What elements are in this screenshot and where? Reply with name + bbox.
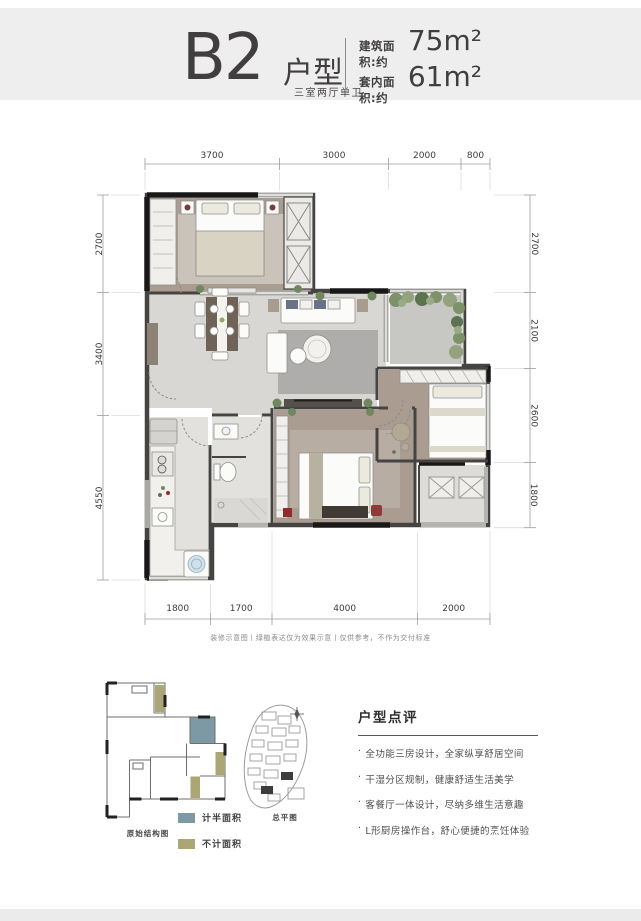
building-area-row: 建筑面积:约 75m² — [359, 24, 482, 60]
review-text: 干湿分区规制，健康舒适生活美学 — [365, 772, 514, 786]
excluded-area-swatch — [178, 839, 195, 849]
inner-area-value: 61m² — [408, 60, 482, 93]
dim-label: 3000 — [323, 151, 346, 161]
dimension-bottom — [145, 613, 490, 625]
structure-diagram — [98, 676, 238, 826]
site-boundary — [244, 705, 307, 808]
review-text: 全功能三房设计，全家纵享舒居空间 — [365, 746, 523, 760]
dim-label: 3700 — [201, 151, 224, 161]
dim-label: 2700 — [95, 232, 105, 255]
review-text: 客餐厅一体设计，尽纳多维生活意趣 — [365, 797, 523, 811]
bullet-marker: · — [358, 772, 361, 786]
dim-label: 2000 — [442, 604, 465, 614]
review-item: · L形厨房操作台，舒心便捷的烹饪体验 — [358, 823, 553, 837]
unit-subtitle: 三室两厅单卫 — [294, 84, 363, 99]
dimension-bottom-labels: 1800 1700 4000 2000 — [166, 604, 465, 614]
half-area-swatch — [178, 813, 195, 823]
floor-plan: 3700 3000 2000 800 2700 3400 4550 2700 2… — [95, 140, 545, 635]
footer-band — [0, 909, 641, 921]
bullet-marker: · — [358, 823, 361, 837]
dim-label: 2000 — [413, 151, 436, 161]
review-title: 户型点评 — [358, 706, 553, 726]
dimension-left-labels: 2700 3400 4550 — [95, 232, 105, 509]
dimension-top — [145, 158, 490, 170]
brochure-page: B2 户型 三室两厅单卫 建筑面积:约 75m² 套内面积:约 61m² — [0, 0, 641, 921]
structure-wall-marks — [107, 683, 225, 817]
area-figures: 建筑面积:约 75m² 套内面积:约 61m² — [359, 24, 482, 96]
review-items: · 全功能三房设计，全家纵享舒居空间 · 干湿分区规制，健康舒适生活美学 · 客… — [358, 746, 553, 837]
bullet-marker: · — [358, 746, 361, 760]
dimension-top-labels: 3700 3000 2000 800 — [201, 151, 485, 161]
legend-row-half-area: 计半面积 — [178, 811, 242, 824]
review-item: · 客餐厅一体设计，尽纳多维生活意趣 — [358, 797, 553, 811]
unit-code: B2 — [182, 20, 263, 96]
disclaimer-text: 装修示意图丨绿植表达仅为效果示意丨仅供参考，不作为交付标准 — [0, 633, 641, 643]
unit-review: 户型点评 · 全功能三房设计，全家纵享舒居空间 · 干湿分区规制，健康舒适生活美… — [358, 706, 553, 848]
dim-label: 2100 — [529, 319, 539, 342]
inner-area-label: 套内面积:约 — [359, 74, 407, 106]
site-plan-label: 总平图 — [240, 812, 330, 823]
structure-half-area — [191, 718, 215, 744]
dim-label: 4550 — [95, 486, 105, 509]
legend: 计半面积 不计面积 — [178, 811, 242, 863]
title-block: B2 户型 三室两厅单卫 建筑面积:约 75m² 套内面积:约 61m² — [182, 20, 482, 100]
legend-row-excluded-area: 不计面积 — [178, 837, 242, 850]
building-area-label: 建筑面积:约 — [359, 38, 407, 70]
review-text: L形厨房操作台，舒心便捷的烹饪体验 — [365, 823, 529, 837]
review-item: · 干湿分区规制，健康舒适生活美学 — [358, 772, 553, 786]
building-area-value: 75m² — [408, 24, 482, 57]
dim-label: 2700 — [529, 232, 539, 255]
dim-label: 3400 — [95, 342, 105, 365]
bullet-marker: · — [358, 797, 361, 811]
dim-label: 4000 — [333, 604, 356, 614]
review-divider — [358, 735, 538, 736]
closet-shaft — [284, 197, 313, 289]
excluded-area-label: 不计面积 — [202, 837, 242, 850]
header: B2 户型 三室两厅单卫 建筑面积:约 75m² 套内面积:约 61m² — [0, 8, 641, 100]
half-area-label: 计半面积 — [202, 811, 242, 824]
dim-label: 1800 — [528, 484, 538, 507]
review-item: · 全功能三房设计，全家纵享舒居空间 — [358, 746, 553, 760]
site-plan — [238, 698, 338, 813]
dim-label: 2600 — [529, 404, 539, 427]
header-divider — [345, 38, 346, 90]
dim-label: 1800 — [166, 604, 189, 614]
dim-label: 1700 — [230, 604, 253, 614]
dim-label: 800 — [467, 151, 484, 161]
